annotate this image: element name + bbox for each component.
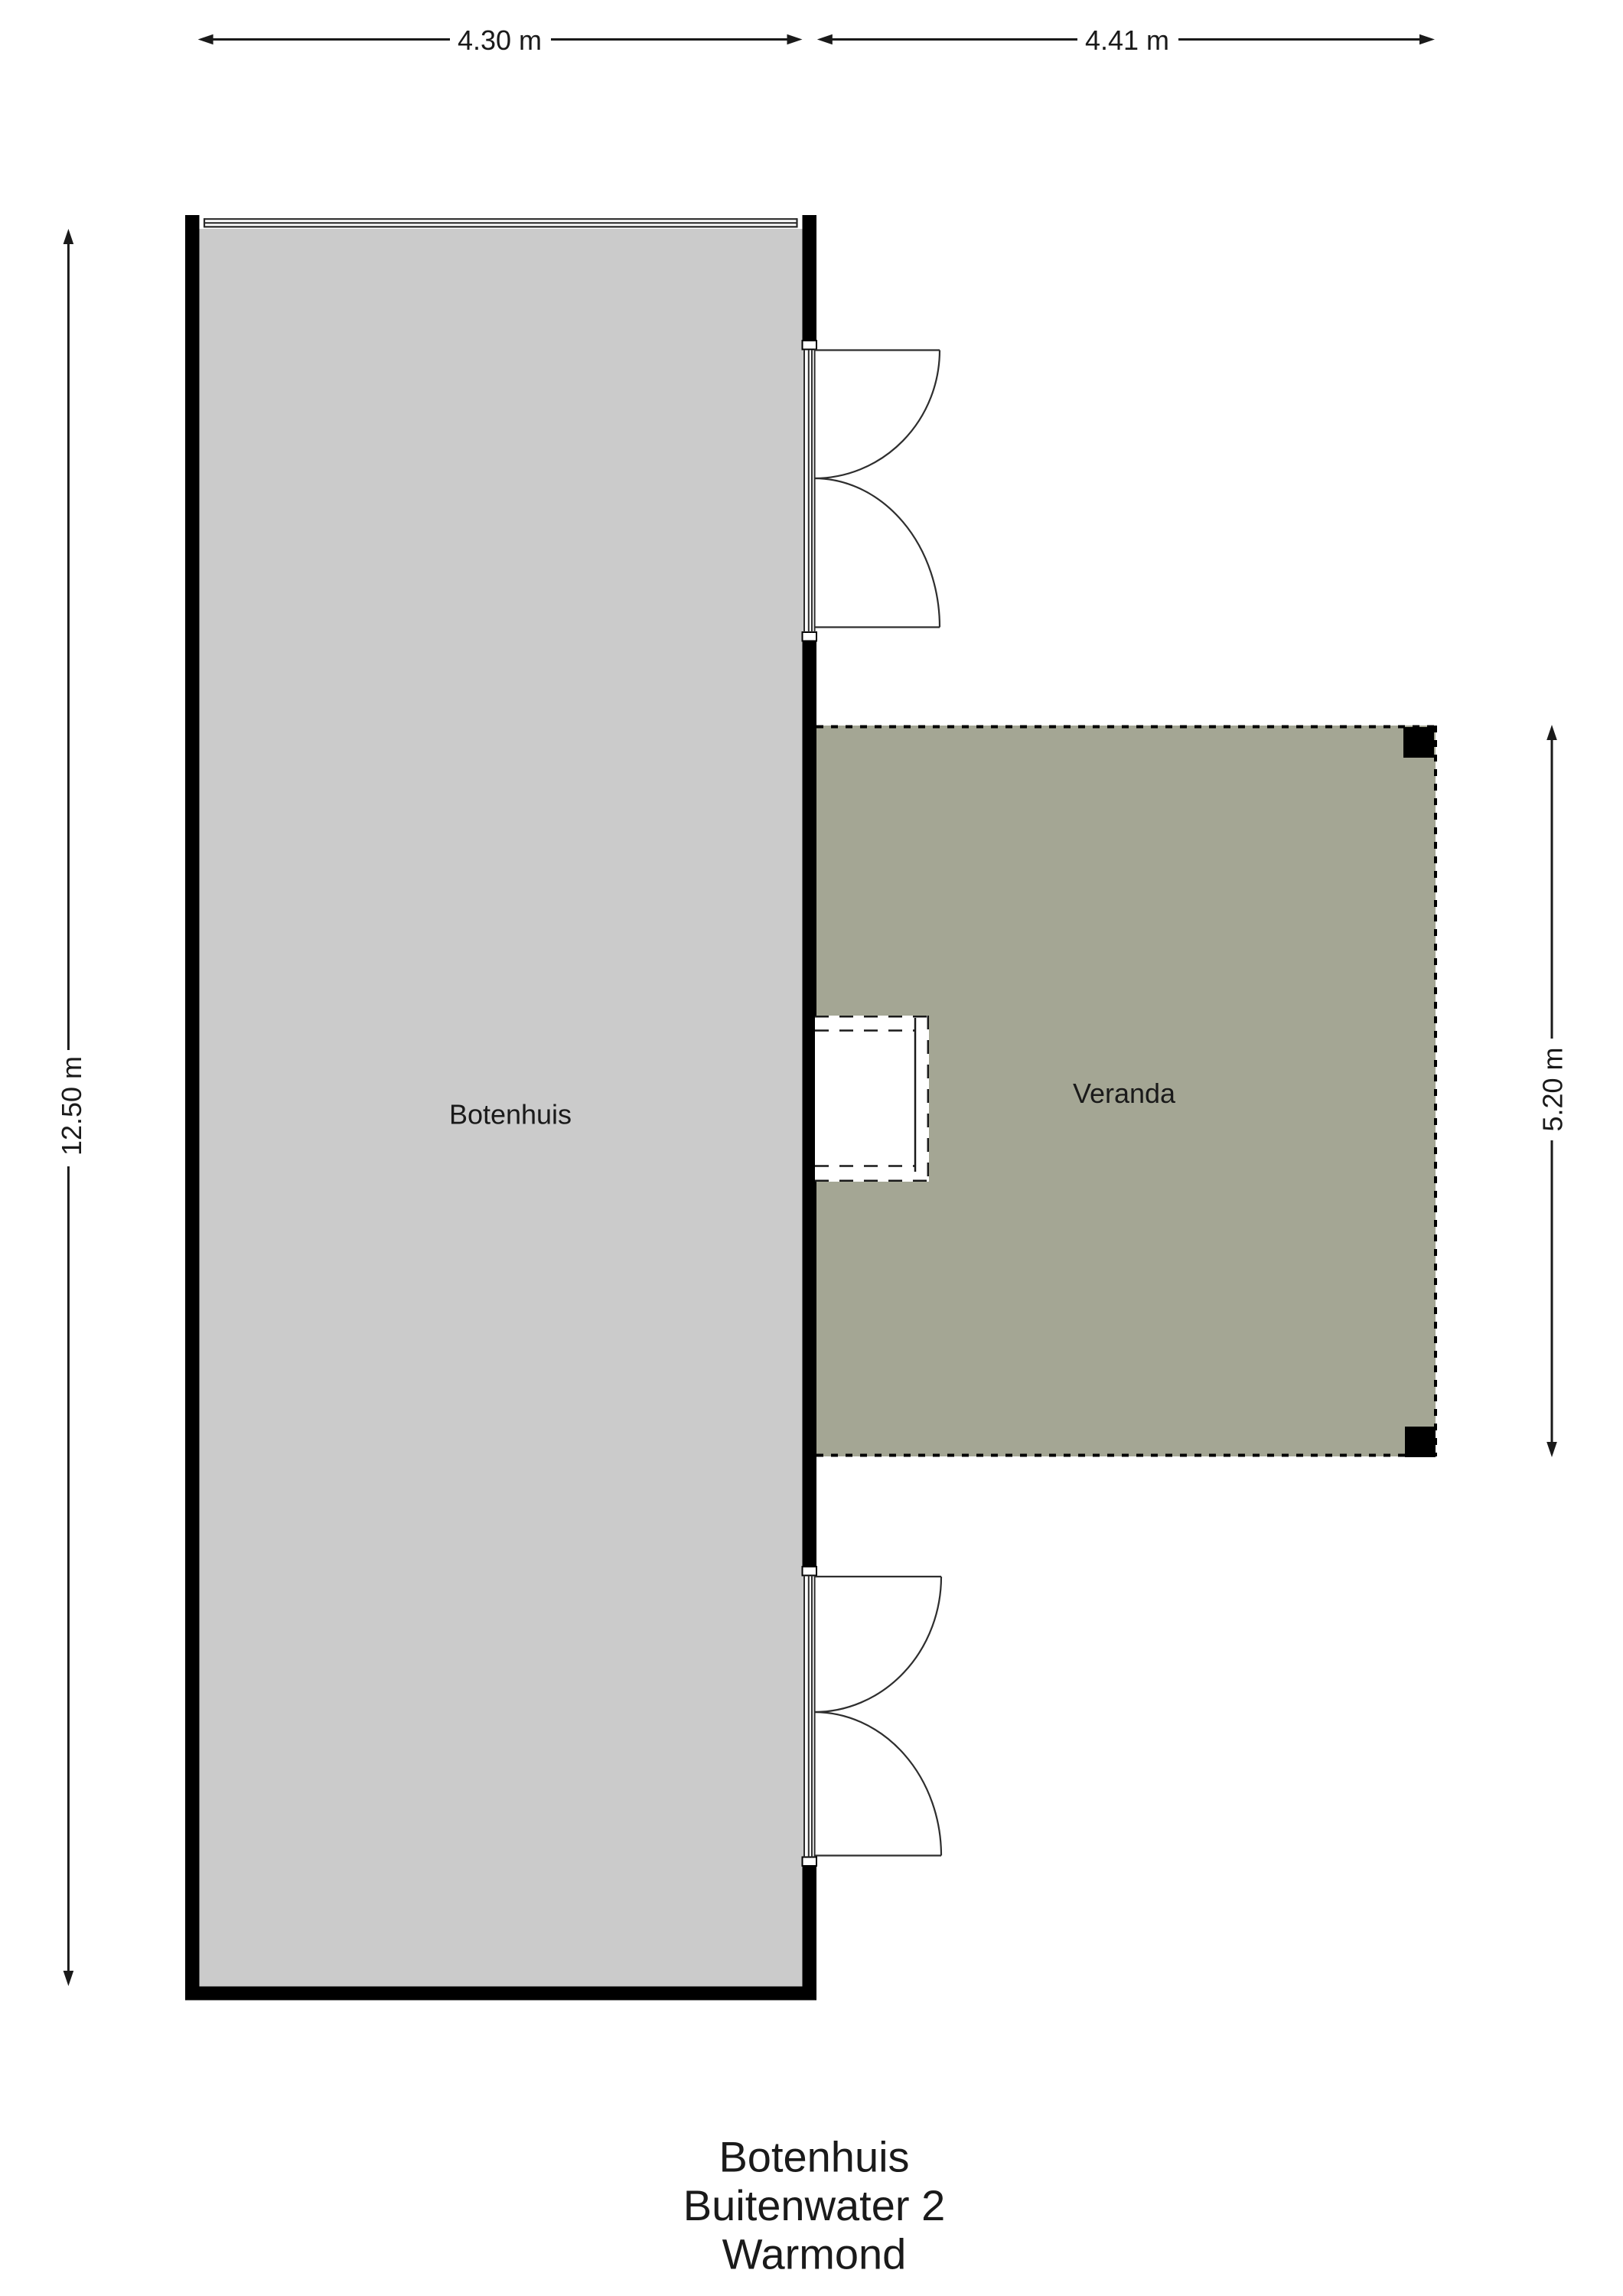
svg-text:4.30 m: 4.30 m [458,24,542,56]
svg-text:Botenhuis: Botenhuis [719,2133,909,2181]
svg-text:5.20 m: 5.20 m [1537,1047,1569,1131]
svg-text:Botenhuis: Botenhuis [449,1098,572,1130]
svg-text:12.50 m: 12.50 m [56,1056,87,1156]
svg-text:Buitenwater 2: Buitenwater 2 [683,2181,945,2229]
svg-text:Warmond: Warmond [722,2230,907,2278]
svg-text:4.41 m: 4.41 m [1085,24,1169,56]
svg-text:Veranda: Veranda [1073,1078,1176,1109]
